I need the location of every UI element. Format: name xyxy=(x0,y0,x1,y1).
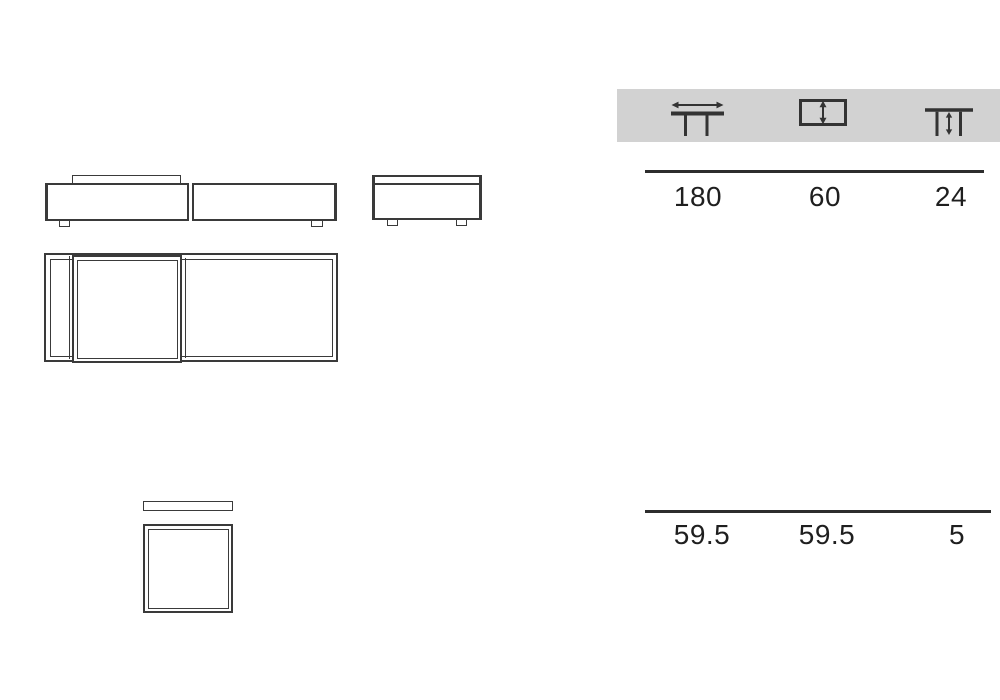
module-side-profile-bar xyxy=(143,501,233,511)
module-plan-inner-line xyxy=(148,529,229,609)
plan-sliding-top-inner-line xyxy=(77,260,178,359)
row1-height-value: 24 xyxy=(935,181,967,213)
row1-depth-value: 60 xyxy=(809,181,841,213)
row2-height-value: 5 xyxy=(949,519,965,551)
side-right-foot xyxy=(456,220,467,226)
front-right-foot xyxy=(311,221,323,227)
side-top-seam-line xyxy=(375,183,479,185)
side-body xyxy=(372,175,482,220)
row2-width-value: 59.5 xyxy=(674,519,731,551)
plan-module-divider-line xyxy=(185,258,186,358)
plan-sliding-top-square xyxy=(72,255,182,363)
front-left-foot xyxy=(59,221,70,227)
row2-depth-value: 59.5 xyxy=(799,519,856,551)
row2-divider-rule xyxy=(645,510,991,513)
front-right-module xyxy=(192,183,337,221)
table-width-icon xyxy=(671,100,724,136)
row1-divider-rule xyxy=(645,170,984,173)
table-depth-icon xyxy=(799,99,847,126)
dimension-header-bar xyxy=(617,89,1000,142)
side-left-foot xyxy=(387,220,398,226)
module-plan-square xyxy=(143,524,233,613)
row1-width-value: 180 xyxy=(674,181,722,213)
table-height-icon xyxy=(925,108,973,136)
plan-left-strip-line xyxy=(69,256,71,359)
front-left-module xyxy=(45,183,189,221)
spec-sheet-page: 180 60 24 59.5 59.5 5 xyxy=(0,0,1000,700)
